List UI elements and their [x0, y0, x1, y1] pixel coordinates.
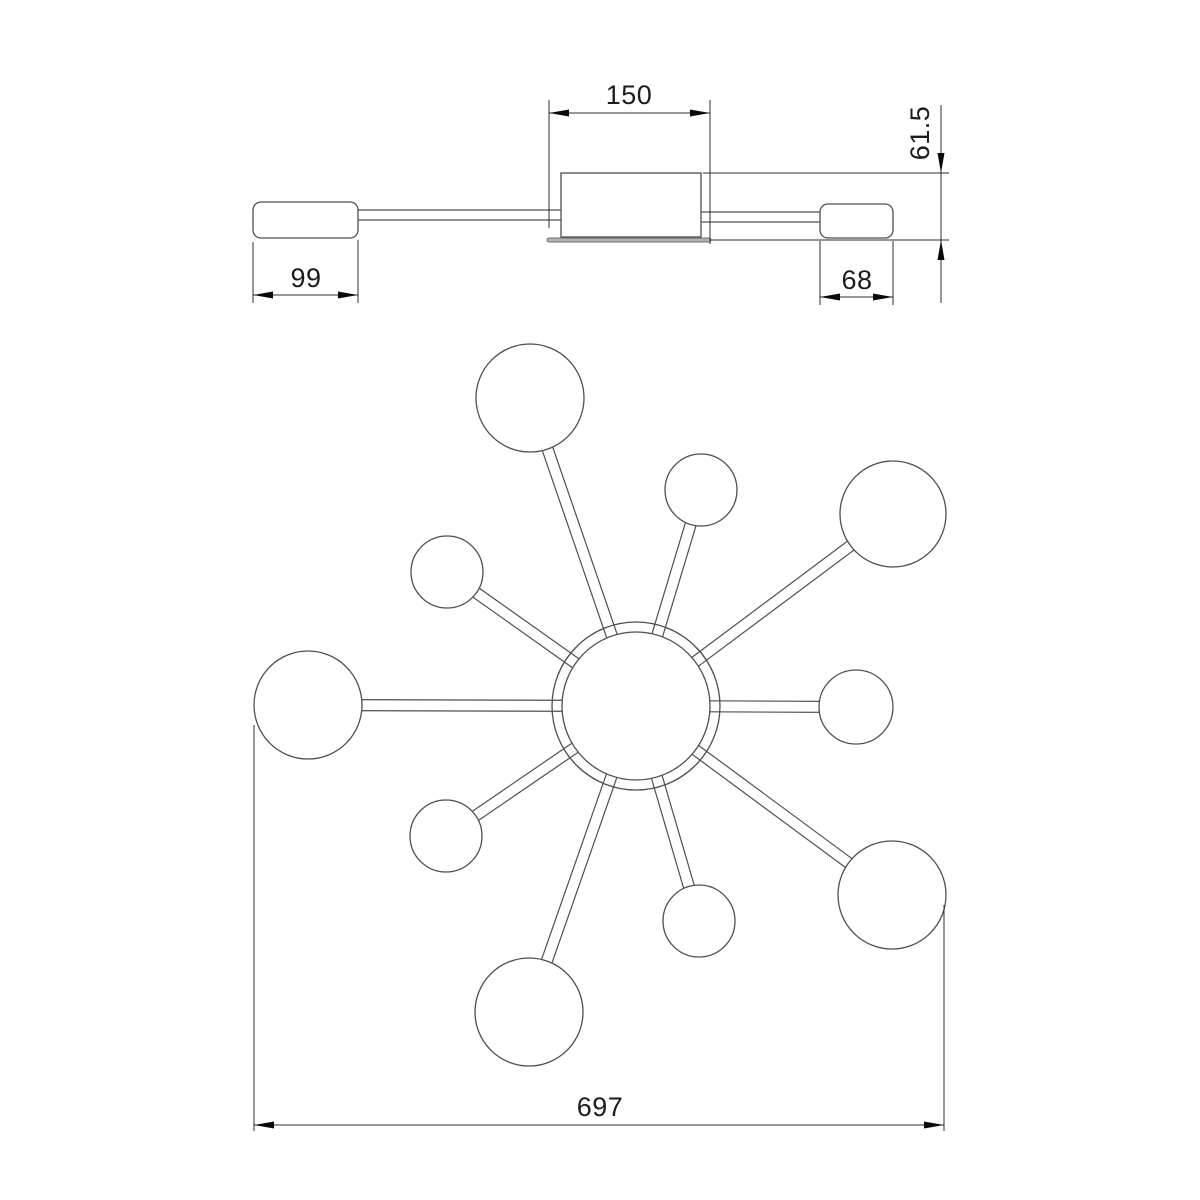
arrowhead-icon: [820, 294, 840, 301]
dimension-overall-diameter: 697: [254, 725, 944, 1131]
dimension-left-shade-width: 99: [253, 240, 358, 303]
arrowhead-icon: [938, 240, 945, 260]
arrowhead-icon: [253, 292, 273, 299]
lamp-sphere: [254, 651, 362, 759]
dimension-label: 68: [841, 265, 872, 295]
lamp-sphere: [819, 670, 893, 744]
technical-drawing: 15061.59968697: [0, 0, 1200, 1200]
lamp-sphere: [665, 454, 737, 526]
arrowhead-icon: [549, 110, 569, 117]
left-shade-cap: [253, 202, 358, 238]
ceiling-mount-plate: [547, 238, 711, 242]
lamp-sphere: [476, 344, 584, 452]
dimension-label: 61.5: [905, 106, 935, 161]
side-view: [253, 173, 893, 242]
lamp-sphere: [838, 841, 946, 949]
arrowhead-icon: [924, 1122, 944, 1129]
arrowhead-icon: [338, 292, 358, 299]
arrowhead-icon: [254, 1122, 274, 1129]
canopy-box: [561, 173, 701, 237]
dimension-label: 150: [606, 80, 653, 110]
lamp-sphere: [411, 536, 483, 608]
arrowhead-icon: [690, 110, 710, 117]
dimension-label: 697: [577, 1092, 624, 1122]
dimension-label: 99: [290, 263, 321, 293]
lamp-sphere: [475, 958, 583, 1066]
arrowhead-icon: [938, 153, 945, 173]
lamp-sphere: [840, 461, 946, 567]
right-shade-cap: [820, 204, 893, 238]
drawing-canvas: 15061.59968697: [0, 0, 1200, 1200]
hub-inner-circle: [562, 632, 710, 780]
dimension-right-shade-width: 68: [820, 241, 893, 305]
lamp-sphere: [663, 885, 735, 957]
arrowhead-icon: [873, 294, 893, 301]
lamp-sphere: [410, 800, 482, 872]
plan-view: [254, 344, 946, 1066]
